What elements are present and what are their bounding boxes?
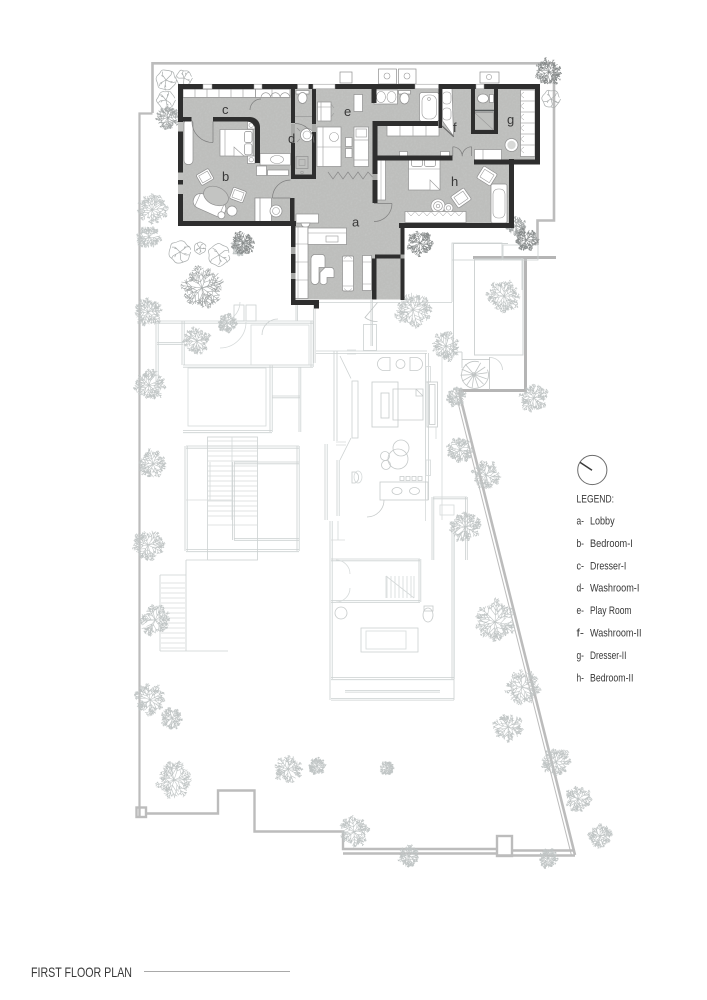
- svg-text:e-: e-: [577, 605, 585, 617]
- svg-text:h: h: [451, 174, 458, 189]
- svg-text:b-: b-: [577, 538, 585, 550]
- svg-text:Washroom-I: Washroom-I: [590, 583, 639, 595]
- svg-text:FIRST FLOOR PLAN: FIRST FLOOR PLAN: [31, 965, 132, 980]
- svg-text:Washroom-II: Washroom-II: [590, 628, 642, 640]
- svg-text:g: g: [507, 112, 514, 127]
- svg-text:Lobby: Lobby: [590, 516, 615, 528]
- svg-text:LEGEND:: LEGEND:: [577, 494, 615, 506]
- svg-text:b: b: [222, 169, 229, 184]
- svg-text:Dresser-II: Dresser-II: [590, 650, 626, 662]
- svg-text:f: f: [453, 120, 457, 135]
- svg-text:e: e: [344, 104, 351, 119]
- svg-text:c: c: [222, 102, 229, 117]
- svg-text:d-: d-: [577, 583, 585, 595]
- svg-text:a: a: [352, 215, 360, 230]
- svg-text:Dresser-I: Dresser-I: [590, 560, 626, 572]
- svg-text:g-: g-: [577, 650, 585, 662]
- svg-text:d: d: [288, 131, 295, 146]
- svg-text:Bedroom-I: Bedroom-I: [590, 538, 633, 550]
- svg-text:Bedroom-II: Bedroom-II: [590, 672, 633, 684]
- svg-text:a-: a-: [577, 516, 585, 528]
- svg-text:c-: c-: [577, 560, 585, 572]
- svg-text:h-: h-: [577, 672, 585, 684]
- svg-text:Play Room: Play Room: [590, 605, 632, 617]
- svg-text:f-: f-: [577, 628, 585, 640]
